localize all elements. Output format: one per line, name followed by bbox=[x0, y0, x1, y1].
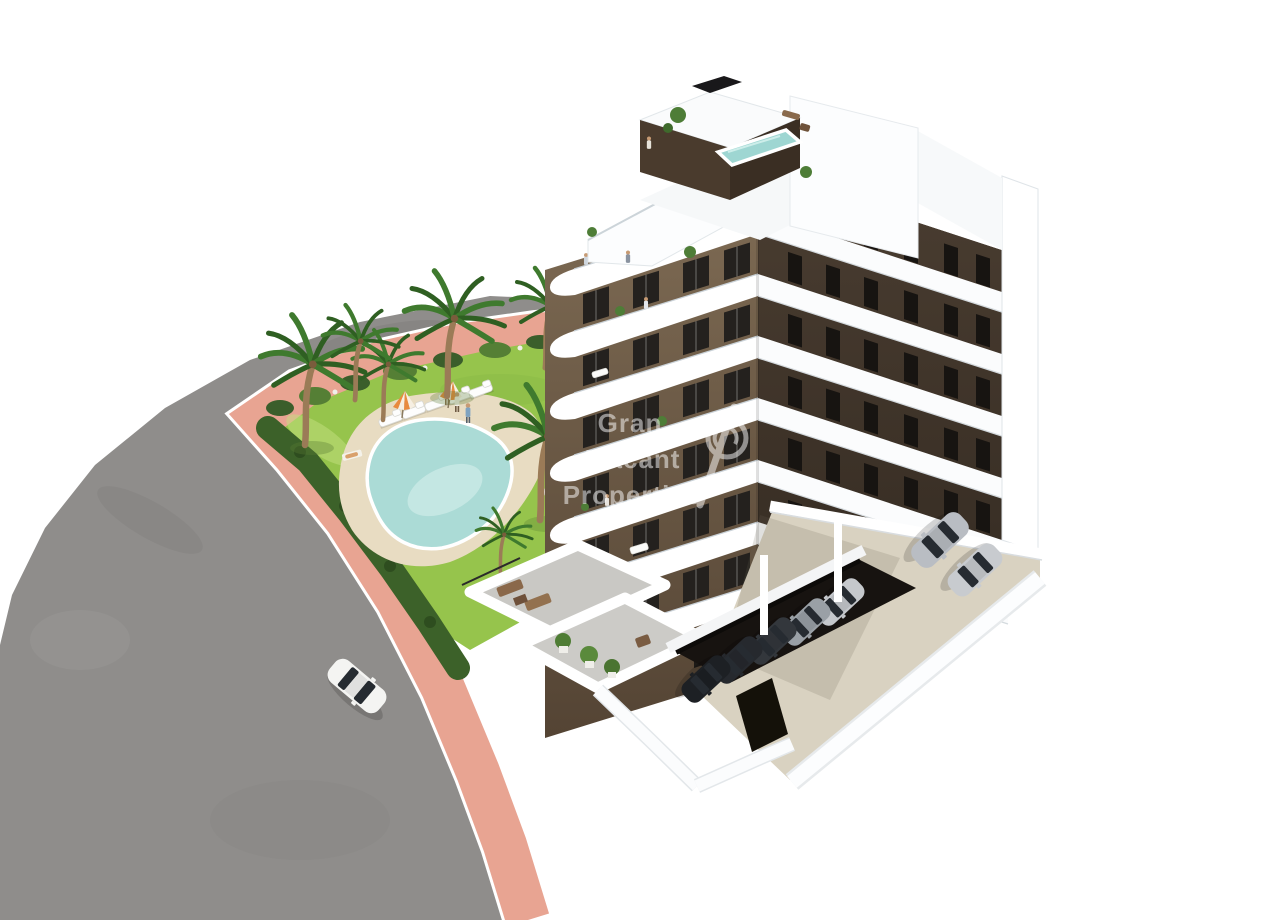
window bbox=[788, 314, 802, 348]
roof-plant bbox=[587, 227, 597, 237]
window bbox=[788, 376, 802, 410]
window bbox=[826, 450, 840, 484]
window bbox=[976, 438, 990, 472]
window bbox=[864, 463, 878, 497]
window bbox=[788, 252, 802, 286]
support-post bbox=[834, 522, 842, 602]
planter-pot bbox=[559, 646, 568, 653]
window bbox=[864, 339, 878, 373]
window bbox=[826, 388, 840, 422]
person bbox=[644, 297, 648, 309]
window bbox=[826, 326, 840, 360]
window bbox=[944, 365, 958, 399]
person bbox=[626, 250, 630, 262]
window bbox=[864, 401, 878, 435]
window bbox=[976, 254, 990, 288]
roof-plant bbox=[800, 166, 812, 178]
planter-pot bbox=[608, 672, 616, 678]
support-post bbox=[760, 555, 768, 635]
planter-pot bbox=[585, 661, 594, 668]
watermark-line1: Gran bbox=[598, 408, 663, 438]
architectural-render-image: Gran Alacant Properties bbox=[0, 0, 1280, 920]
window bbox=[904, 414, 918, 448]
window bbox=[864, 277, 878, 311]
window bbox=[904, 352, 918, 386]
window bbox=[904, 290, 918, 324]
watermark-line3: Properties bbox=[563, 480, 702, 510]
window bbox=[826, 264, 840, 298]
window bbox=[944, 303, 958, 337]
rooftop-solarium bbox=[587, 76, 918, 266]
person bbox=[647, 136, 651, 148]
watermark-line2: Alacant bbox=[580, 444, 681, 474]
window bbox=[904, 476, 918, 510]
corner-pillar-white bbox=[1002, 176, 1038, 552]
window bbox=[788, 438, 802, 472]
window bbox=[976, 314, 990, 348]
person bbox=[584, 253, 588, 265]
window bbox=[976, 376, 990, 410]
window bbox=[944, 427, 958, 461]
roof-plant bbox=[663, 123, 673, 133]
roof-plant bbox=[670, 107, 686, 123]
roof-ac-unit bbox=[692, 76, 742, 93]
roof-plant bbox=[684, 246, 696, 258]
window bbox=[944, 243, 958, 277]
window bbox=[976, 500, 990, 534]
